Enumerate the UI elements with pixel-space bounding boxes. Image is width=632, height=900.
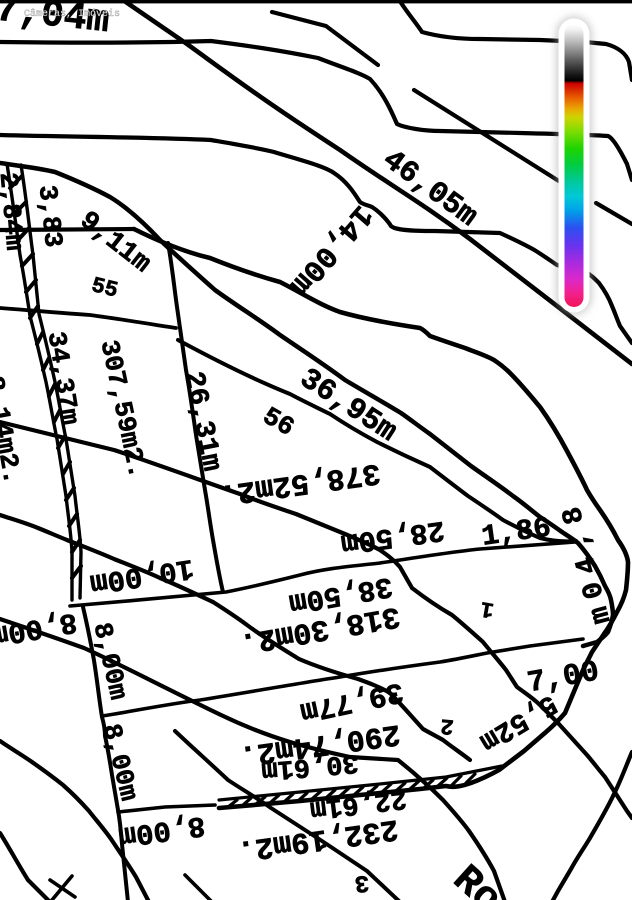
- svg-text:2: 2: [439, 713, 454, 739]
- svg-text:Câmeras, Imóveis: Câmeras, Imóveis: [24, 8, 120, 20]
- svg-text:3: 3: [353, 868, 370, 896]
